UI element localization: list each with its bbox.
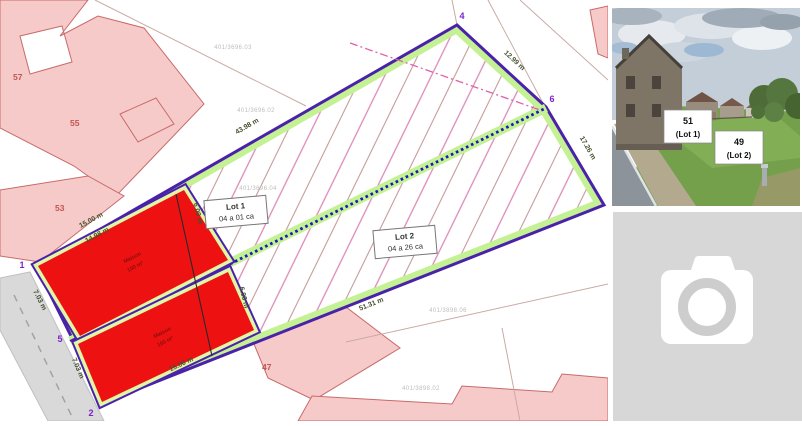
cadastral-ref: 401/3696.03 (214, 45, 252, 51)
site-plan-svg: Maison 150 m² Maison 150 m² 401/3696.03 … (0, 0, 608, 421)
utility-post (761, 164, 768, 186)
lot2-box: Lot 2 04 a 26 ca (373, 225, 437, 258)
street-view-photo[interactable]: 51 (Lot 1) 49 (Lot 2) (612, 8, 800, 206)
corner-4: 4 (459, 11, 464, 21)
street-view-svg: 51 (Lot 1) 49 (Lot 2) (612, 8, 800, 206)
corner-2: 2 (88, 408, 93, 418)
photo-label-lot2: 49 (Lot 2) (715, 131, 763, 164)
lot1-box: Lot 1 04 a 01 ca (204, 195, 268, 228)
photo-label-number: 51 (683, 116, 693, 126)
parcel-number-47: 47 (262, 362, 272, 372)
house-base (616, 144, 682, 150)
corner-1: 1 (19, 260, 24, 270)
cadastral-ref: 401/3696.02 (237, 108, 275, 114)
chimney (622, 48, 629, 59)
photo-label-lot1: 51 (Lot 1) (664, 110, 712, 143)
corner-6: 6 (549, 94, 554, 104)
photo-label-lot: (Lot 2) (727, 151, 752, 160)
cadastral-ref: 401/3696.04 (239, 186, 277, 192)
lot1-name: Lot 1 (226, 201, 246, 212)
cadastral-ref: 401/3898.02 (402, 386, 440, 392)
camera-icon (613, 212, 802, 421)
cadastral-ref: 401/3898.06 (429, 308, 467, 314)
corner-5: 5 (57, 334, 62, 344)
photo-label-number: 49 (734, 137, 744, 147)
parcel-number-57: 57 (13, 72, 23, 82)
parcel-number-53: 53 (55, 203, 65, 213)
photo-placeholder[interactable] (613, 212, 802, 421)
lot2-name: Lot 2 (395, 231, 415, 242)
camera-lens (683, 283, 731, 331)
photo-column: 51 (Lot 1) 49 (Lot 2) (608, 0, 802, 421)
photo-label-lot: (Lot 1) (676, 130, 701, 139)
page: Maison 150 m² Maison 150 m² 401/3696.03 … (0, 0, 802, 421)
site-plan-map: Maison 150 m² Maison 150 m² 401/3696.03 … (0, 0, 608, 421)
parcel-number-55: 55 (70, 118, 80, 128)
